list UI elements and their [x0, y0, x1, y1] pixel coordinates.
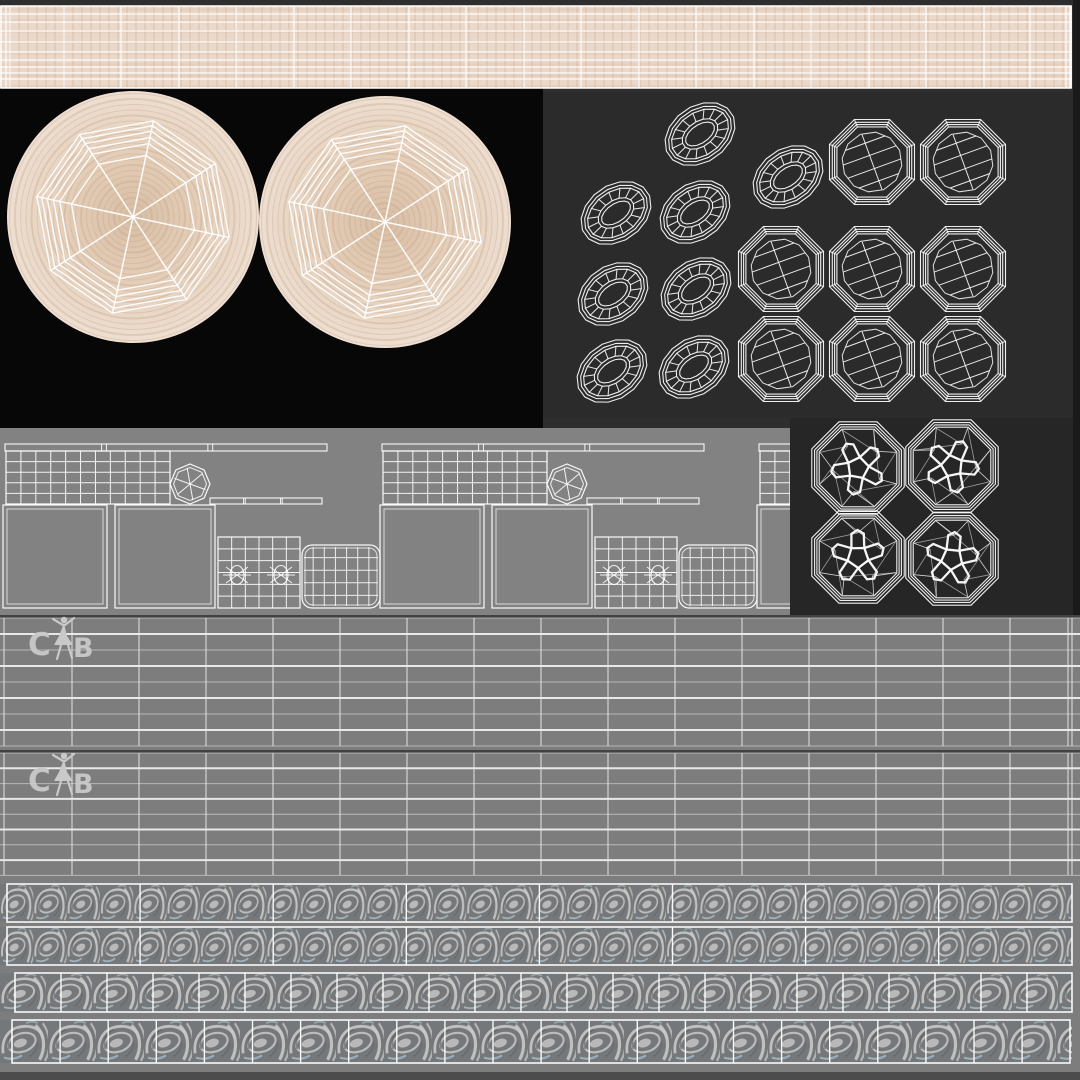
furniture-uv-copy	[3, 444, 380, 608]
octagon-disc	[739, 227, 824, 312]
knob-gem	[906, 513, 998, 605]
wood-disc	[259, 96, 511, 348]
plank-grid-section: CB	[0, 615, 1080, 746]
octagon-disc	[921, 317, 1006, 402]
uv-wireframe-overlay: CBCB	[0, 0, 1080, 1080]
octagon-disc	[830, 120, 915, 205]
knob-gem	[906, 420, 998, 512]
uv-texture-atlas: CBCB	[0, 0, 1080, 1080]
oval-ring	[650, 245, 743, 333]
oval-ring	[566, 327, 659, 415]
oval-ring	[570, 169, 663, 257]
cb-logo: CB	[28, 753, 94, 800]
logo-letter-b: B	[73, 633, 94, 664]
wood-disc-wireframes	[7, 91, 511, 348]
logo-letter-b: B	[73, 769, 94, 800]
logo-letter-c: C	[28, 627, 51, 663]
knob-gem	[812, 511, 904, 603]
wave-tile-row	[0, 1020, 1072, 1063]
octagon-disc	[830, 227, 915, 312]
ring-and-disc-wireframes	[566, 90, 1006, 415]
oval-ring	[648, 323, 741, 411]
cb-logo: CB	[28, 617, 94, 664]
plank-grid-section: CB	[0, 750, 1080, 875]
wave-tile-row	[0, 973, 1072, 1012]
oval-ring	[654, 90, 747, 178]
oval-ring	[649, 168, 742, 256]
octagon-disc	[830, 317, 915, 402]
wave-tile-row	[0, 884, 1072, 922]
wave-tile-row	[0, 927, 1072, 965]
furniture-uv-copy	[380, 444, 757, 608]
wood-disc	[7, 91, 259, 343]
octagon-disc	[921, 227, 1006, 312]
logo-letter-c: C	[28, 763, 51, 799]
wood-strip-wireframe	[0, 6, 1072, 88]
logo-dancer-icon	[53, 753, 74, 795]
octagon-disc	[739, 317, 824, 402]
logo-dancer-icon	[53, 617, 74, 659]
oval-ring	[567, 250, 660, 338]
knob-gem-wireframes	[812, 420, 998, 605]
knob-gem	[812, 422, 904, 514]
octagon-disc	[921, 120, 1006, 205]
oval-ring	[742, 133, 835, 221]
